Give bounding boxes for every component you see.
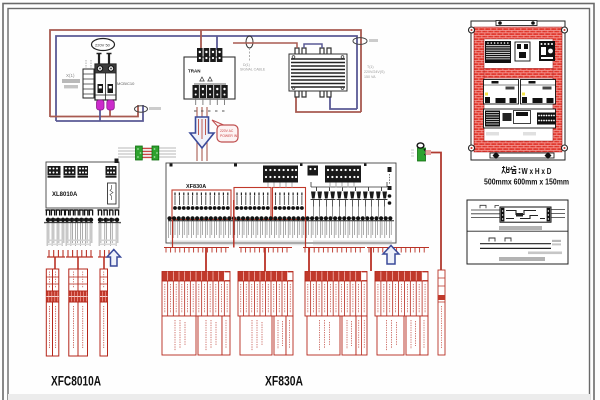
svg-text:D(1): D(1) xyxy=(243,63,250,67)
svg-text:150 VA: 150 VA xyxy=(364,75,376,79)
svg-text:XFC8010A: XFC8010A xyxy=(51,373,101,389)
svg-text:W x H x D: W x H x D xyxy=(522,166,552,176)
svg-text:XF830A: XF830A xyxy=(265,373,303,389)
svg-text:POWER IN: POWER IN xyxy=(220,134,238,138)
svg-text:500mmx 600mm x 150mm: 500mmx 600mm x 150mm xyxy=(484,177,569,187)
svg-text:SIGNAL CABLE: SIGNAL CABLE xyxy=(240,68,266,72)
svg-text:220V AC: 220V AC xyxy=(220,129,234,133)
svg-text:TRAN: TRAN xyxy=(188,69,201,74)
svg-text:MCB/C10: MCB/C10 xyxy=(117,81,135,86)
svg-text:220V/24V(S): 220V/24V(S) xyxy=(364,70,385,74)
svg-text:220V 50: 220V 50 xyxy=(95,43,111,48)
svg-text:XF830A: XF830A xyxy=(186,184,206,190)
svg-text:T(1): T(1) xyxy=(367,65,374,69)
svg-text:X(1): X(1) xyxy=(66,73,75,78)
svg-text:XL8010A: XL8010A xyxy=(52,192,78,198)
